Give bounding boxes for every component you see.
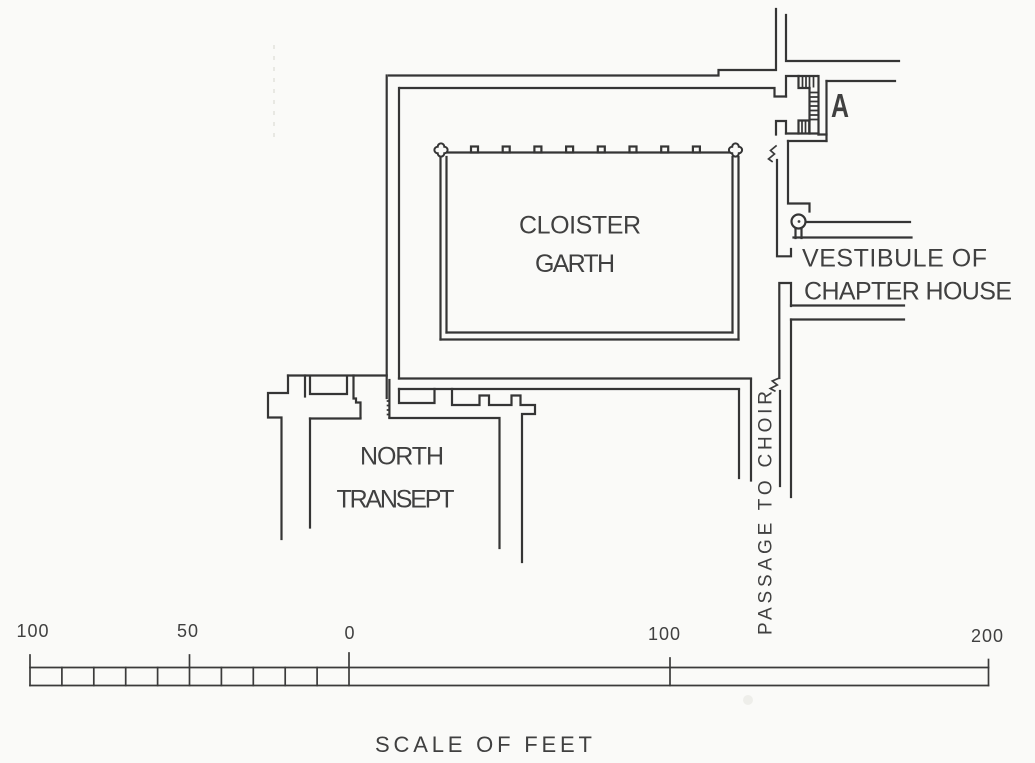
svg-text:GARTH: GARTH: [535, 250, 615, 278]
svg-text:100: 100: [648, 624, 681, 644]
svg-text:VESTIBULE OF: VESTIBULE OF: [802, 245, 987, 273]
svg-text:CLOISTER: CLOISTER: [519, 212, 641, 240]
svg-text:CHAPTER HOUSE: CHAPTER HOUSE: [804, 278, 1012, 306]
svg-text:TRANSEPT: TRANSEPT: [337, 486, 455, 514]
svg-text:50: 50: [177, 621, 199, 641]
svg-text:100: 100: [16, 621, 49, 641]
svg-text:NORTH: NORTH: [360, 443, 444, 471]
svg-text:0: 0: [344, 623, 354, 643]
svg-text:200: 200: [971, 626, 1004, 646]
svg-text:SCALE OF FEET: SCALE OF FEET: [375, 732, 592, 757]
svg-text:A: A: [831, 87, 849, 124]
